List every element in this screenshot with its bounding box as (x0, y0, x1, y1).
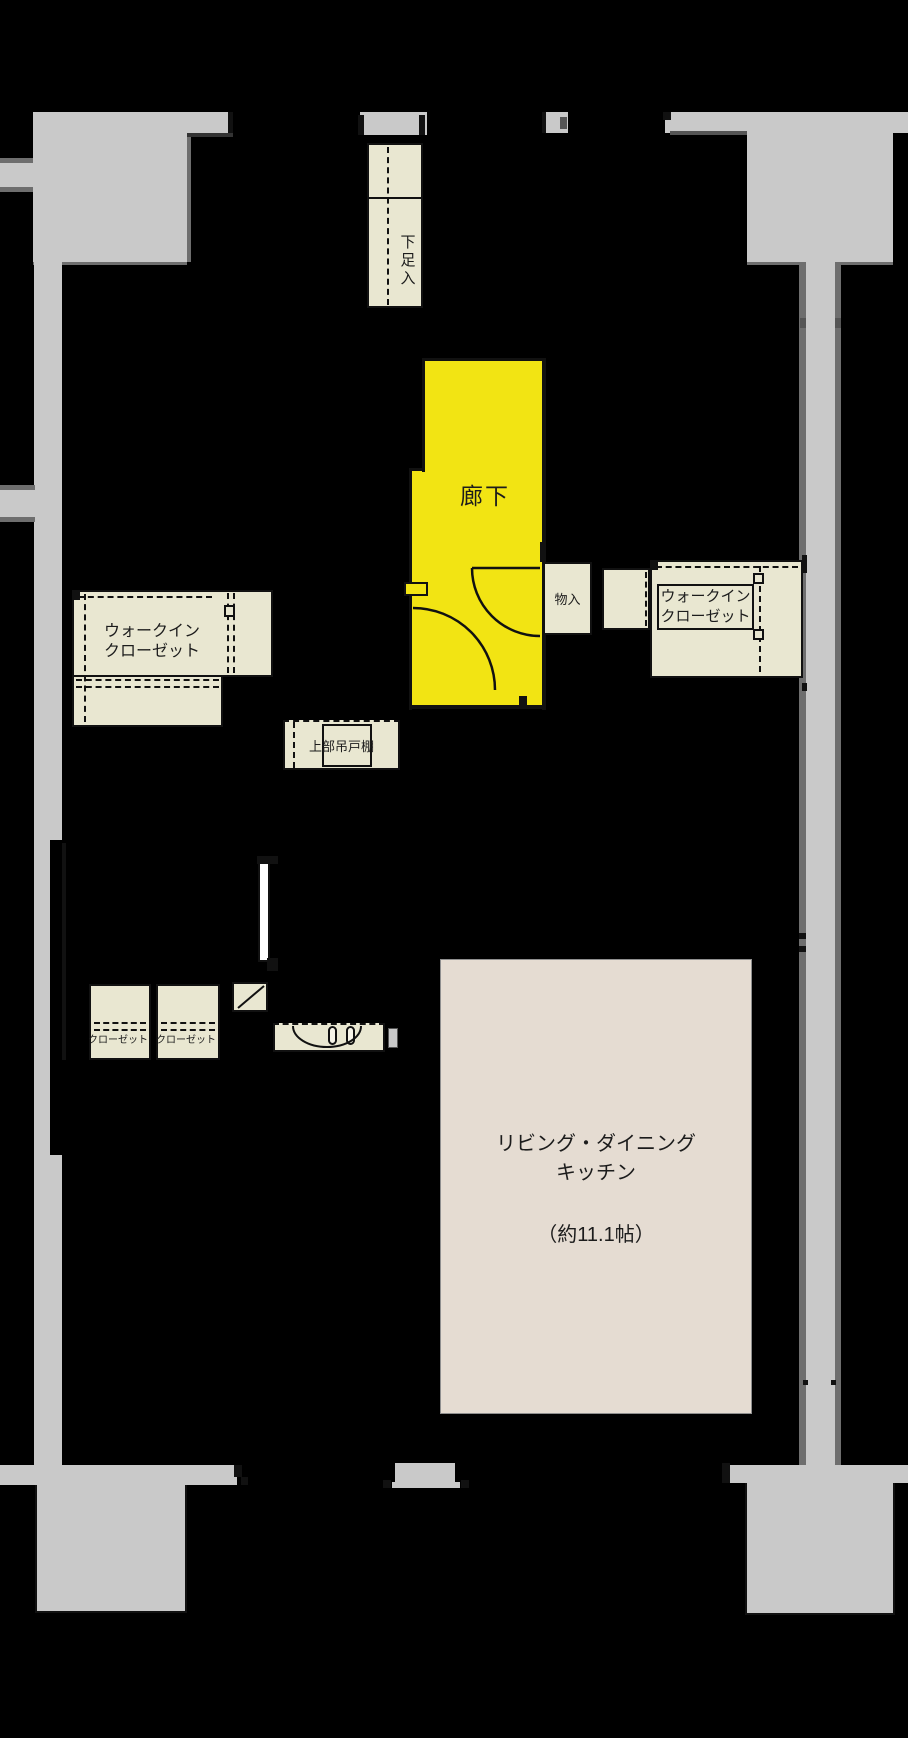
pipe-hook-icon (224, 605, 235, 617)
wall-jamb-tick (560, 117, 567, 129)
walkin-left-label-line2: クローゼット (104, 642, 200, 662)
wall-edge-line (670, 131, 747, 135)
walkin-right-dashed-top (656, 566, 798, 568)
pillar-bottom-right (745, 1483, 895, 1615)
wall-jamb-tick (234, 1465, 242, 1477)
wall-bottom-center-stub (395, 1463, 455, 1482)
wall-jamb-tick (241, 1477, 248, 1485)
wall-jamb-tick (722, 1463, 730, 1483)
wall-jamb-tick (835, 318, 841, 328)
wall-right-column-edge (835, 262, 841, 1465)
wall-stub-edge (0, 187, 33, 192)
wall-edge-line (187, 133, 233, 137)
pocket-door (258, 862, 270, 962)
wall-right-column-edge (799, 262, 806, 1465)
wall-top-right-band (665, 112, 908, 133)
wall-above-shoe-cabinet (360, 112, 427, 135)
wall-bottom-center-lip (392, 1482, 460, 1488)
pipe-hook-icon (753, 573, 764, 584)
walkin-right-label-line1: ウォークイン (660, 587, 750, 607)
upper-cabinet-dashed-top (283, 720, 400, 722)
door-jamb-tick (540, 542, 546, 562)
wall-jamb-tick (650, 560, 658, 570)
wall-left-strip-thin (34, 840, 50, 1155)
corridor-border-right (542, 358, 546, 710)
walkin-left-label: ウォークイン クローゼット (82, 622, 222, 662)
closet-a: クローゼット (89, 984, 151, 1060)
walkin-right-dashed-line (645, 572, 647, 626)
corridor-border-top (422, 358, 545, 361)
wall-left-strip-lower (34, 1155, 62, 1467)
wall-jamb-tick (72, 590, 80, 600)
wall-jamb-tick (803, 1380, 808, 1385)
ldk-label-line1: リビング・ダイニング (441, 1130, 751, 1159)
wall-edge-line (187, 137, 191, 262)
walkin-left-label-line1: ウォークイン (104, 622, 200, 642)
shoe-cabinet-label: 下足入 (395, 218, 419, 304)
floor-plan: 廊下 下足入 物入 ウォークイン クローゼット ウォークイン クローゼット 上部… (0, 0, 908, 1738)
walkin-left-dashed-divider (76, 686, 219, 688)
wall-left-stub-lower (0, 490, 35, 517)
wall-jamb-tick (799, 933, 806, 939)
corridor-room (425, 360, 542, 470)
closet-b-dashed (161, 1022, 215, 1024)
pipe-hook-icon (753, 629, 764, 640)
wall-bottom-left-band (0, 1465, 237, 1485)
wall-jamb-tick (358, 115, 364, 135)
ldk-room: リビング・ダイニング キッチン （約11.1帖） (440, 959, 752, 1414)
ldk-label-line2: キッチン (441, 1159, 751, 1188)
faucet-icon (346, 1026, 355, 1045)
wall-jamb-tick (383, 1480, 391, 1488)
walkin-right-label-box: ウォークイン クローゼット (657, 584, 754, 630)
wall-bottom-right-band (728, 1465, 908, 1483)
wall-left-stub-upper (0, 163, 33, 187)
ldk-label: リビング・ダイニング キッチン (441, 1130, 751, 1188)
closet-a-dashed (94, 1022, 146, 1024)
wall-jamb-tick (802, 683, 807, 691)
walkin-right-label-line2: クローゼット (660, 607, 750, 627)
wall-top-left-block (33, 133, 187, 262)
faucet-icon (328, 1026, 337, 1045)
corridor-label: 廊下 (430, 480, 540, 508)
wall-jamb-tick (388, 1028, 398, 1048)
wall-jamb-tick (542, 112, 546, 133)
wall-opening-line (62, 843, 66, 1060)
wall-jamb-tick (461, 1480, 469, 1488)
door-jamb-tick (519, 696, 527, 708)
counter-box (232, 982, 268, 1012)
walkin-left-lower (72, 675, 223, 727)
wall-top-left-band (33, 112, 230, 133)
shoe-cabinet-dashed-line (387, 147, 389, 305)
door-jamb-bottom (267, 958, 278, 971)
wall-jamb-tick (419, 115, 425, 135)
closet-b-label: クローゼット (156, 1031, 216, 1046)
walkin-right-annex (602, 568, 650, 630)
wall-jamb-tick (799, 946, 806, 952)
washbasin-dashed-top (273, 1023, 385, 1025)
wall-right-column (806, 262, 835, 1465)
walkin-left-dashed-top (78, 596, 212, 598)
storage-room: 物入 (543, 562, 592, 635)
closet-a-label: クローゼット (89, 1031, 147, 1046)
pillar-bottom-left (35, 1485, 187, 1613)
shoe-cabinet-upper (367, 143, 423, 199)
corridor-wall-notch (404, 582, 428, 596)
wall-stub-edge (0, 517, 35, 522)
wall-jamb-tick (663, 112, 671, 120)
wall-jamb-tick (800, 318, 806, 328)
wall-left-strip-upper (34, 262, 62, 840)
corridor-border-left (422, 358, 425, 472)
upper-cabinet-label: 上部吊戸棚 (283, 736, 400, 754)
wall-jamb-tick (228, 112, 233, 133)
wall-top-right-block (747, 133, 893, 262)
ldk-size-label: （約11.1帖） (441, 1218, 751, 1247)
closet-b: クローゼット (156, 984, 220, 1060)
walkin-left-dashed-divider (76, 679, 219, 681)
wall-jamb-tick (831, 1380, 836, 1385)
